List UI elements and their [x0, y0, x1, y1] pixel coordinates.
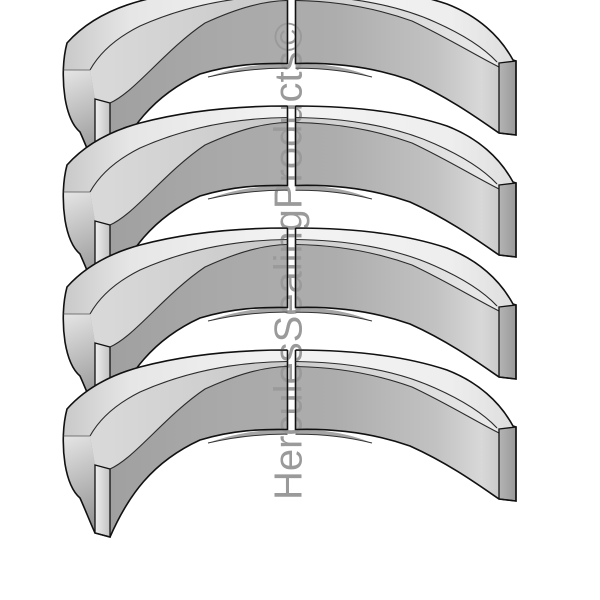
- split-rings-illustration: HerculesSealingProducts©: [0, 0, 600, 600]
- product-image-stage: HerculesSealingProducts©: [0, 0, 600, 600]
- watermark-text: HerculesSealingProducts©: [268, 22, 311, 500]
